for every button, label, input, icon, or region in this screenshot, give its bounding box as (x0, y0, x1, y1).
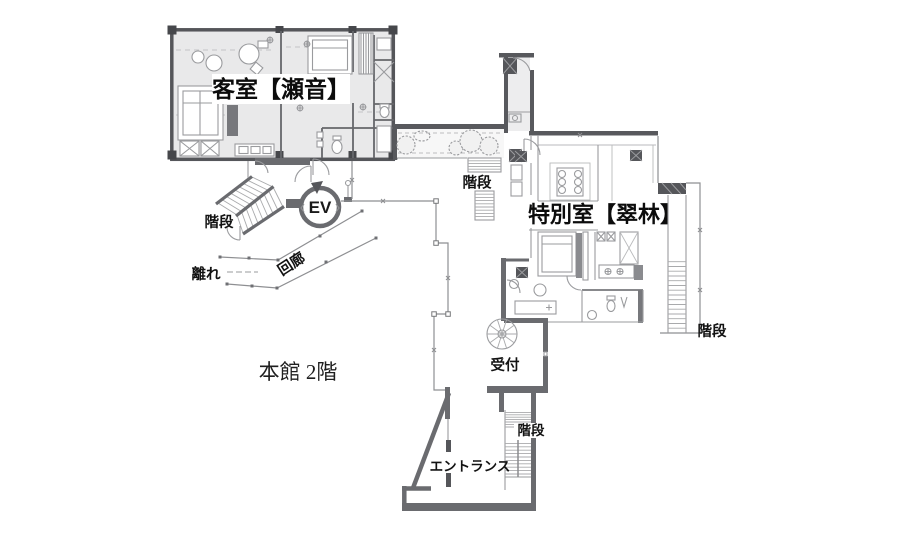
door-arc (295, 166, 311, 182)
dining-stools (559, 171, 582, 194)
corridor-right-wall (530, 70, 534, 133)
stairs-mid-lower (475, 191, 494, 220)
window-gap (544, 352, 547, 356)
reception-room: 受付 (487, 318, 548, 412)
tatami-mat (550, 163, 590, 200)
reception-bottom-wall (487, 386, 548, 393)
urinal-icon (621, 297, 627, 307)
bed (538, 232, 576, 276)
elevator-bridge (286, 199, 302, 208)
reception-right-wall (543, 356, 548, 387)
dining-table (557, 168, 583, 196)
entrance-label: エントランス (430, 459, 511, 474)
door-jamb (446, 440, 451, 452)
sitting-room (501, 258, 581, 321)
hanare-label: 離れ (192, 265, 221, 283)
door-arc (313, 159, 329, 175)
closet-column (583, 232, 588, 280)
entrance-area: 階段 エントランス (402, 387, 548, 511)
boundary-ticks (350, 178, 450, 352)
corridor-cabinets (511, 165, 522, 196)
stairs-mid-label: 階段 (463, 174, 492, 192)
door-jamb (446, 473, 451, 487)
post-marker (346, 181, 351, 186)
guest-room-label: 客室【瀬音】 (212, 76, 350, 102)
entrance-right-wall (531, 392, 536, 511)
garden-left-cap (393, 124, 397, 160)
guest-room-building: 客室【瀬音】 (168, 26, 398, 176)
floor-plan: 客室【瀬音】 階段 EV (0, 0, 900, 540)
bathroom (597, 232, 638, 278)
floor-plan-page: 客室【瀬音】 階段 EV (0, 0, 900, 540)
boundary-line (341, 161, 450, 390)
toilet-tank (607, 296, 615, 300)
toilet (607, 301, 615, 312)
sink-icon (588, 311, 597, 320)
chair-icon (534, 284, 546, 296)
stairs-left-label: 階段 (205, 213, 234, 231)
toilet-room (548, 290, 643, 323)
entrance-bottom-wall (402, 503, 535, 511)
bed-inner (542, 236, 572, 272)
kitchen-counter (227, 105, 238, 136)
reception-label: 受付 (491, 356, 520, 374)
tub-cap (634, 265, 643, 280)
spiral-staircase (487, 319, 517, 349)
reception-right-wall (543, 321, 548, 352)
special-room-label: 特別室【翠林】 (528, 202, 682, 227)
headboard (576, 233, 582, 278)
elevator-label: EV (309, 198, 332, 217)
elevator: EV (286, 166, 352, 226)
special-room-boundary (658, 136, 700, 333)
stairs-right-label: 階段 (698, 322, 727, 340)
floor-title: 本館 2階 (259, 360, 338, 384)
garden-strip (393, 124, 506, 160)
stairs-mid: 階段 (463, 158, 502, 220)
stairs-entrance: 階段 (505, 410, 548, 490)
stairs-left: 階段 (205, 161, 285, 240)
corridor-railings: 回廊 (219, 210, 378, 290)
corridor-top-wall (499, 53, 534, 58)
reception-left-stub (499, 393, 504, 412)
garden-top-wall (394, 124, 506, 129)
special-room-building: 特別室【翠林】 (501, 131, 702, 333)
north-corridor (499, 53, 540, 196)
special-room-top-wall (529, 131, 658, 136)
hanare: 離れ (192, 265, 259, 283)
stairs-entrance-label: 階段 (518, 422, 546, 438)
stairs-mid-upper (468, 158, 501, 172)
